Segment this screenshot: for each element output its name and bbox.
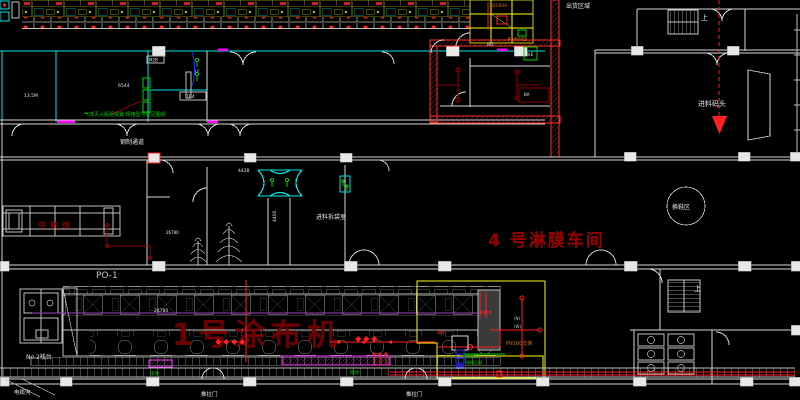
dim-6544: 6544 xyxy=(118,83,130,89)
shipping-area-label: 出货区域 xyxy=(566,2,590,10)
room-area-label: 13.5M xyxy=(24,93,38,99)
po1-label: PO-1 xyxy=(96,271,118,281)
material-dock-label: 进料码头 xyxy=(698,99,726,108)
door-arc xyxy=(452,92,466,106)
equipment-code-q1840: Q1840 xyxy=(492,3,507,9)
transfer-line-label: 中转线 xyxy=(38,220,74,230)
staircase-bottom: 上 xyxy=(668,280,701,312)
coater-name: 1号涂布机 xyxy=(172,318,343,353)
code-m2: M2 xyxy=(487,42,494,48)
sliding-door-label-a: 推拉门 xyxy=(201,390,218,398)
panel-indicator xyxy=(3,4,6,7)
double-door-arc xyxy=(230,52,256,65)
code-we: W.E xyxy=(526,52,534,57)
door-arc xyxy=(12,124,24,136)
pump-note-1: 给水泵 xyxy=(466,353,478,359)
piping-fixtures xyxy=(437,68,549,102)
flow-arrow xyxy=(712,116,727,134)
coating-line: No.2栈台 24780 1号涂布机 xyxy=(20,280,545,378)
tag-n: (N) xyxy=(514,316,521,321)
double-door-arc xyxy=(710,9,734,21)
stairs-up-label-top: 上 xyxy=(701,13,708,22)
double-door-arc xyxy=(196,124,220,136)
door-arc xyxy=(382,52,394,64)
sliding-door-label-b: 推拉门 xyxy=(406,390,423,398)
steel-walkway-label: 钢制通道 xyxy=(120,138,144,146)
debag-room-label: 进料拆袋室 xyxy=(316,213,346,221)
dim-26780: 26780 xyxy=(166,230,179,235)
staircase-top: 上 xyxy=(668,10,708,34)
air-shower xyxy=(258,170,302,196)
pn160-label: PN160支架 xyxy=(506,340,532,347)
stairs-up-label-bottom: 上 xyxy=(694,284,701,293)
w-supply-label: W给水 xyxy=(479,309,493,316)
dim-24780: 24780 xyxy=(154,308,168,314)
code-pn6465: PN6465 xyxy=(508,37,527,43)
floorplan-drawing: Q1840 M2B LF TB4 6544 13.5M 气体灭火瓶组装置 规格型… xyxy=(0,0,800,400)
tag-w: (W) xyxy=(514,324,522,329)
double-door-arc xyxy=(586,250,616,265)
pump-note-2: 规格见图 xyxy=(466,359,482,365)
machine-top-rail xyxy=(63,286,500,294)
code-m2b: M2B xyxy=(149,58,158,63)
dim-4400: 4400 xyxy=(272,210,278,222)
right-building-top: 上 进料码头 出货区域 xyxy=(566,0,800,157)
top-production-line xyxy=(0,0,470,29)
workshop-title: 4 号淋膜车间 xyxy=(488,230,605,251)
transfer-conveyor: 中转线 xyxy=(3,206,152,260)
plant-symbols xyxy=(190,223,242,265)
machine-end-unit xyxy=(478,290,500,350)
right-building-bottom: 上 xyxy=(630,269,800,384)
cad-floorplan-canvas[interactable]: Q1840 M2B LF TB4 6544 13.5M 气体灭火瓶组装置 规格型… xyxy=(0,0,800,400)
door-arc xyxy=(193,188,207,202)
grounding-pad xyxy=(149,360,172,367)
drain-label: 排水 xyxy=(437,329,446,336)
pipe-run xyxy=(107,225,150,258)
person-figures xyxy=(271,179,289,188)
right-edge-ruler xyxy=(794,14,800,152)
machine-base xyxy=(30,357,500,365)
door-arc xyxy=(716,332,729,345)
cable-trench-strip xyxy=(0,368,795,377)
cable-trench-label: 电缆沟 xyxy=(14,388,31,396)
double-door-arc xyxy=(705,53,729,65)
dim-4428: 4428 xyxy=(238,168,250,174)
shoe-change-label: 换鞋区 xyxy=(672,203,690,211)
bottom-wall: 电缆沟 推拉门 推拉门 xyxy=(0,368,800,398)
door-arc xyxy=(160,160,173,173)
code-tb4: TB4 xyxy=(185,94,195,100)
double-door-arc xyxy=(115,124,139,136)
code-ba: BA xyxy=(524,92,530,97)
mid-corridor: 钢制通道 xyxy=(0,138,800,173)
door-arc xyxy=(378,160,389,171)
double-door-arc xyxy=(228,124,252,136)
gas-extinguisher-note: 气体灭火瓶组装置 规格型号详见图纸 xyxy=(84,111,166,118)
dock-door-panel xyxy=(748,70,770,140)
no2-platform-machine xyxy=(20,289,62,343)
column-red-boxed xyxy=(148,153,160,163)
